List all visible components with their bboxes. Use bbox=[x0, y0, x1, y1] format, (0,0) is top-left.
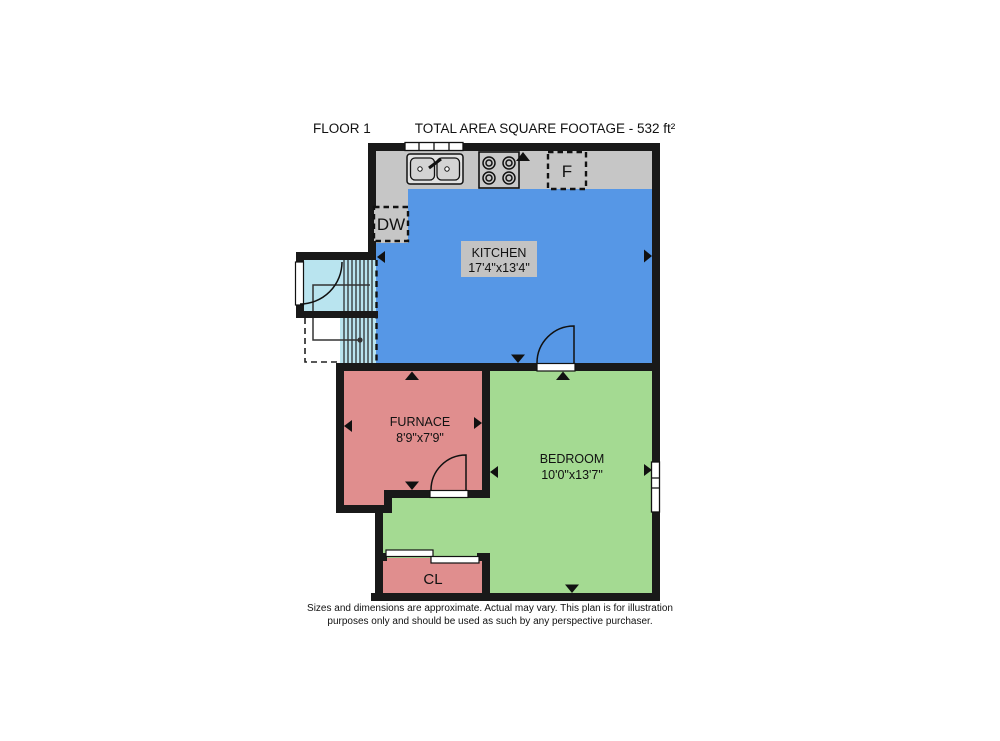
fridge-label: F bbox=[562, 162, 572, 181]
closet-label: CL bbox=[423, 571, 442, 588]
bedroom-name: BEDROOM bbox=[540, 452, 605, 466]
dishwasher-label: DW bbox=[377, 215, 405, 234]
kitchen-label: KITCHEN 17'4"x13'4" bbox=[461, 241, 537, 277]
fridge-box: F bbox=[548, 152, 586, 189]
entry-door-leaf bbox=[296, 262, 304, 305]
disclaimer: Sizes and dimensions are approximate. Ac… bbox=[307, 603, 673, 627]
floor-plan-svg: FLOOR 1 TOTAL AREA SQUARE FOOTAGE - 532 … bbox=[0, 0, 1000, 741]
sink-icon bbox=[407, 154, 463, 184]
total-area-label: TOTAL AREA SQUARE FOOTAGE - 532 ft² bbox=[415, 121, 676, 136]
stair-direction-dot bbox=[357, 337, 362, 342]
dishwasher-box: DW bbox=[374, 207, 408, 241]
furnace-dimensions: 8'9"x7'9" bbox=[396, 431, 444, 445]
furnace-door-sill bbox=[430, 491, 468, 498]
kitchen-dimensions: 17'4"x13'4" bbox=[468, 261, 530, 275]
floor-plan-page: FLOOR 1 TOTAL AREA SQUARE FOOTAGE - 532 … bbox=[0, 0, 1000, 741]
disclaimer-line2: purposes only and should be used as such… bbox=[327, 616, 652, 627]
bedroom-dimensions: 10'0"x13'7" bbox=[541, 468, 603, 482]
furnace-name: FURNACE bbox=[390, 415, 450, 429]
stove-icon bbox=[479, 152, 519, 188]
kitchen-name: KITCHEN bbox=[472, 246, 527, 260]
closet-slider-panel-left bbox=[386, 550, 433, 557]
bedroom-window bbox=[652, 462, 660, 512]
floor-label: FLOOR 1 bbox=[313, 121, 371, 136]
closet-slider-panel-right bbox=[431, 557, 479, 564]
disclaimer-line1: Sizes and dimensions are approximate. Ac… bbox=[307, 603, 673, 614]
kitchen-door-sill bbox=[537, 364, 575, 372]
